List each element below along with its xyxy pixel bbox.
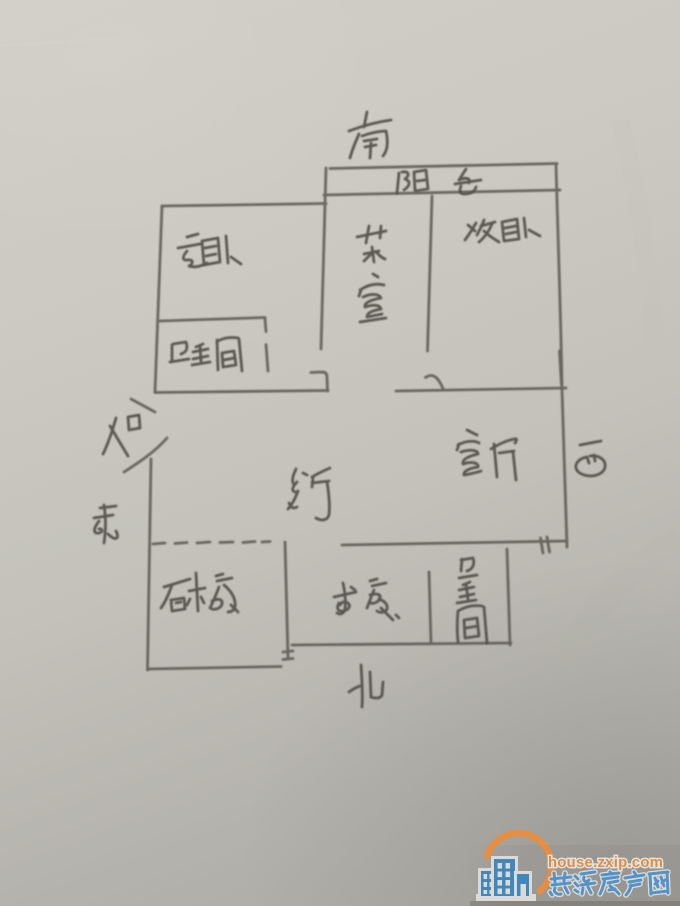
svg-text:house.zxip.com: house.zxip.com: [548, 855, 663, 871]
